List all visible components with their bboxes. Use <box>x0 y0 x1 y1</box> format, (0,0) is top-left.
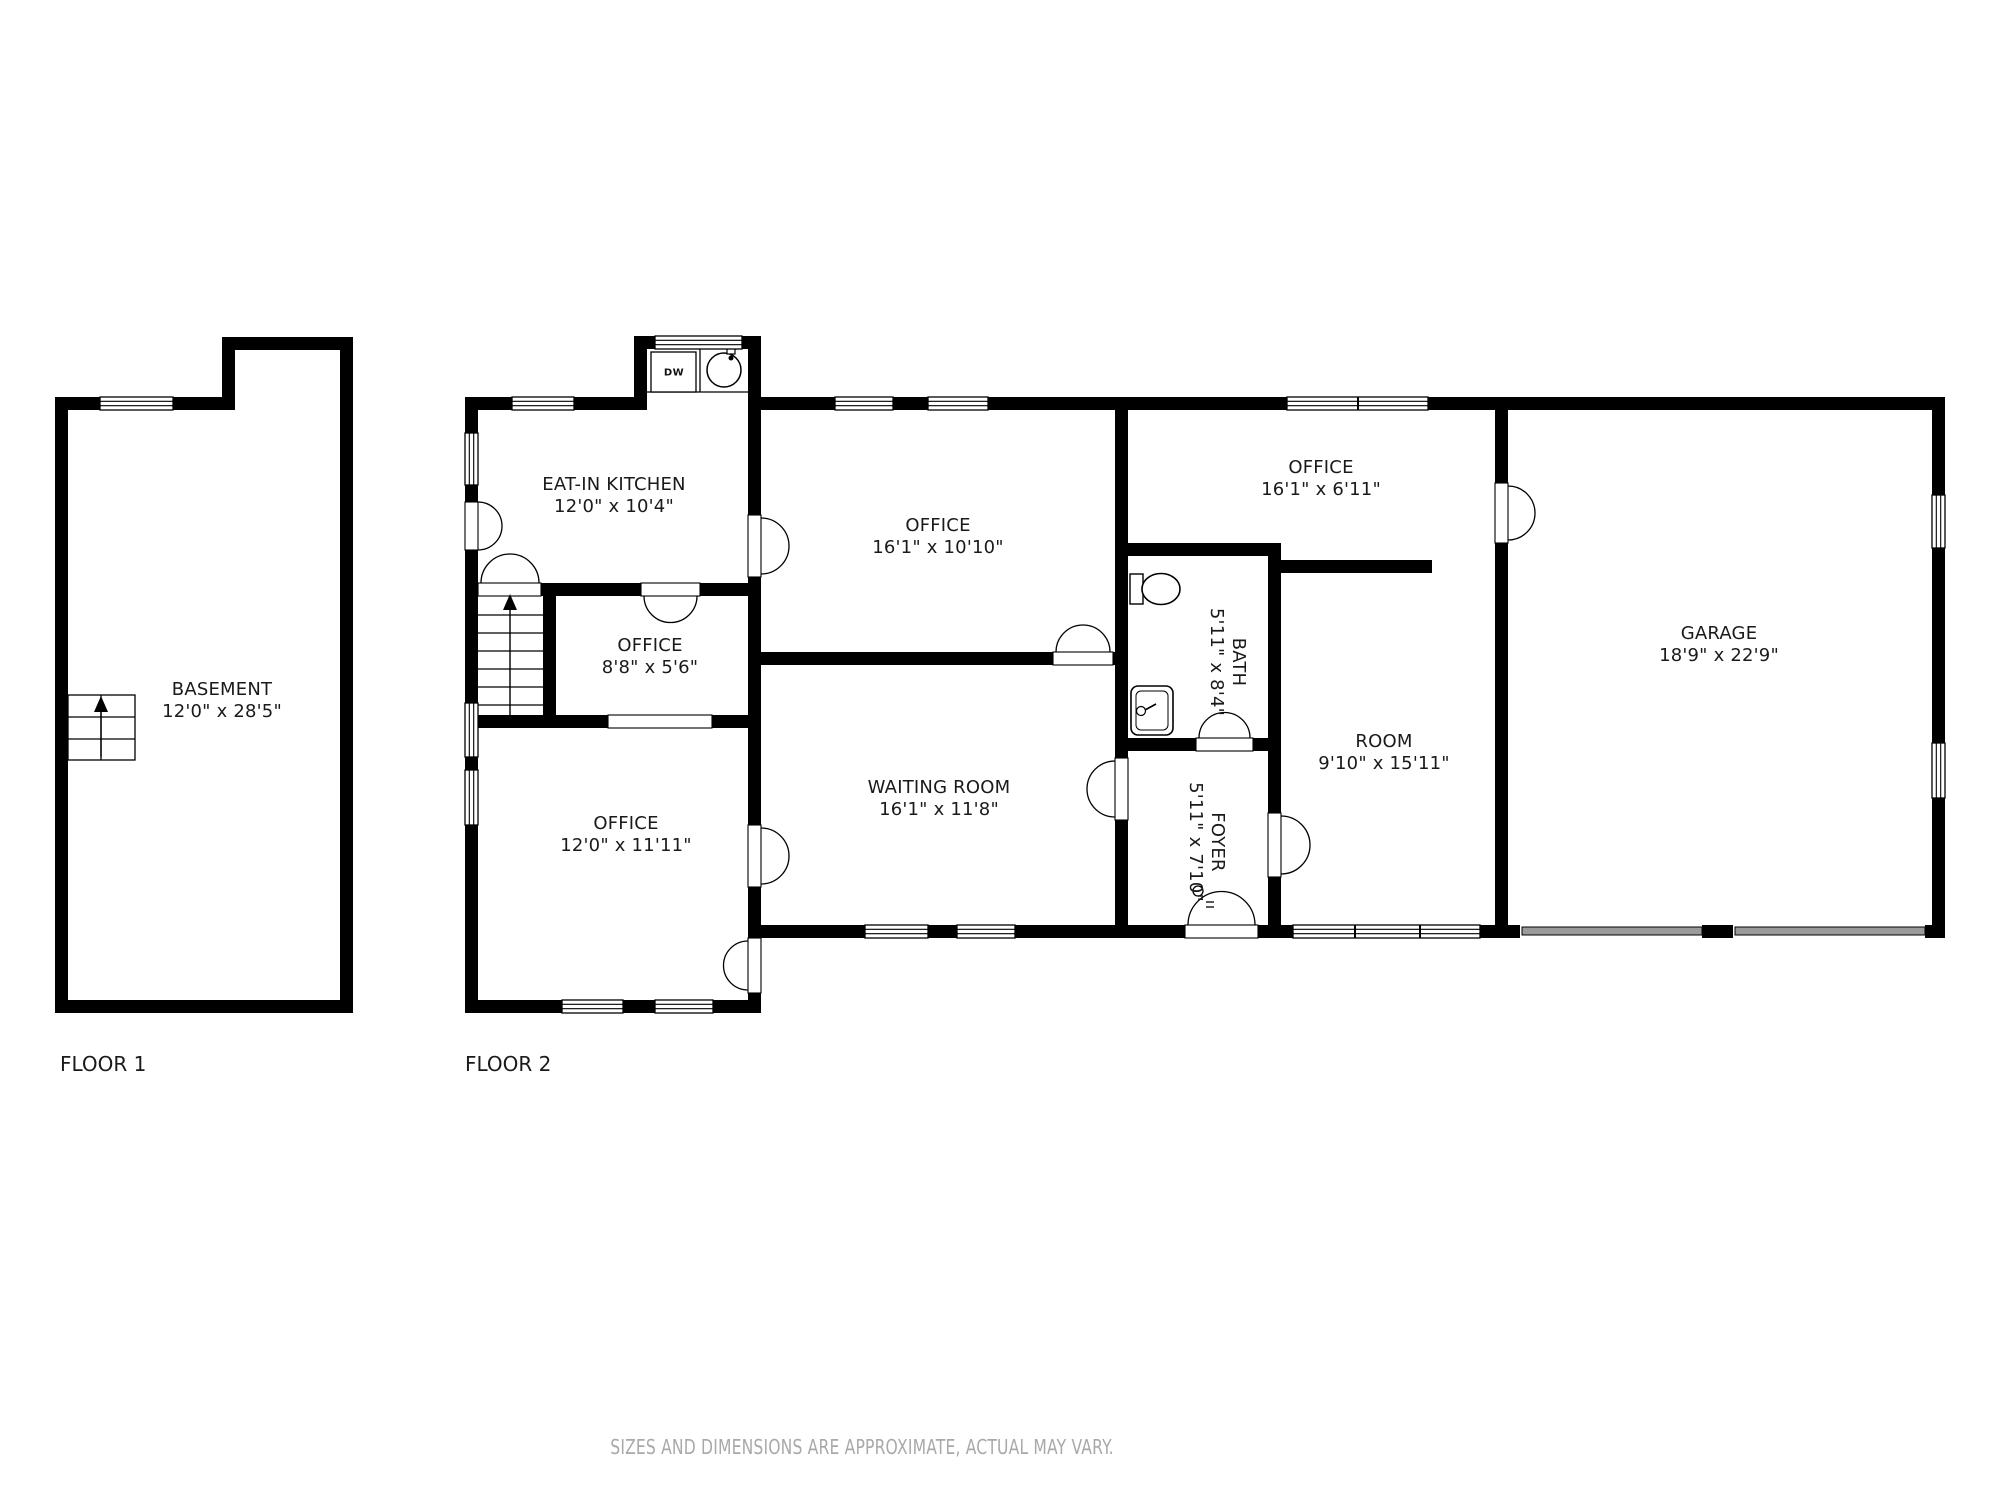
window-icon <box>512 397 574 410</box>
door-icon <box>478 554 541 596</box>
door-icon <box>748 515 789 577</box>
room-name: EAT-IN KITCHEN <box>542 474 685 496</box>
room-dims: 5'11" x 7'10" <box>1184 782 1206 902</box>
room-name: OFFICE <box>872 515 1004 537</box>
floorplan-page: BASEMENT 12'0" x 28'5" EAT-IN KITCHEN 12… <box>0 0 2000 1500</box>
window-icon <box>655 1000 713 1013</box>
window-icon <box>957 925 1015 938</box>
disclaimer-text: SIZES AND DIMENSIONS ARE APPROXIMATE, AC… <box>610 1435 1113 1459</box>
toilet-icon <box>1130 574 1180 605</box>
wall-opening <box>608 715 712 728</box>
room-dims: 12'0" x 28'5" <box>162 701 282 723</box>
room-dims: 12'0" x 11'11" <box>560 835 692 857</box>
floor2-label: FLOOR 2 <box>465 1052 551 1076</box>
door-icon <box>724 938 762 993</box>
garage-door-icon <box>1520 925 1925 938</box>
door-icon <box>1495 483 1535 543</box>
floorplan-drawing <box>0 0 2000 1500</box>
bath-sink-icon <box>1131 686 1173 735</box>
stairs-icon <box>478 594 543 715</box>
bath-label: BATH 5'11" x 8'4" <box>1205 608 1249 716</box>
room-name: ROOM <box>1318 731 1450 753</box>
room-name: WAITING ROOM <box>868 777 1011 799</box>
window-icon <box>835 397 893 410</box>
dishwasher-label: DW <box>664 368 684 379</box>
window-icon <box>655 336 742 349</box>
room-dims: 16'1" x 11'8" <box>868 799 1011 821</box>
room-dims: 9'10" x 15'11" <box>1318 753 1450 775</box>
door-icon <box>465 502 502 550</box>
foyer-label: FOYER 5'11" x 7'10" <box>1184 782 1228 902</box>
window-icon <box>465 703 478 757</box>
door-icon <box>748 825 789 887</box>
office-top-label: OFFICE 16'1" x 10'10" <box>872 515 1004 559</box>
room-dims: 12'0" x 10'4" <box>542 496 685 518</box>
window-icon <box>865 925 928 938</box>
window-icon <box>465 770 478 825</box>
window-icon <box>928 397 988 410</box>
window-icon <box>100 397 173 410</box>
room-name: BATH <box>1227 608 1249 716</box>
window-icon <box>1287 397 1428 410</box>
office-bottom-label: OFFICE 12'0" x 11'11" <box>560 813 692 857</box>
room-name: OFFICE <box>560 813 692 835</box>
room-dims: 8'8" x 5'6" <box>602 657 699 679</box>
room-label: ROOM 9'10" x 15'11" <box>1318 731 1450 775</box>
door-icon <box>1087 758 1128 820</box>
room-dims: 18'9" x 22'9" <box>1659 645 1779 667</box>
room-dims: 5'11" x 8'4" <box>1205 608 1227 716</box>
room-name: FOYER <box>1206 782 1228 902</box>
waiting-room-label: WAITING ROOM 16'1" x 11'8" <box>868 777 1011 821</box>
door-icon <box>1053 625 1113 665</box>
kitchen-label: EAT-IN KITCHEN 12'0" x 10'4" <box>542 474 685 518</box>
room-dims: 16'1" x 6'11" <box>1261 479 1381 501</box>
door-icon <box>641 583 700 623</box>
floor1-basement-plan <box>55 337 353 1013</box>
window-icon <box>562 1000 623 1013</box>
office-right-label: OFFICE 16'1" x 6'11" <box>1261 457 1381 501</box>
room-name: BASEMENT <box>162 679 282 701</box>
basement-label: BASEMENT 12'0" x 28'5" <box>162 679 282 723</box>
office-small-label: OFFICE 8'8" x 5'6" <box>602 635 699 679</box>
window-icon <box>465 433 478 485</box>
basement-stairs-icon <box>68 695 135 760</box>
window-icon <box>1932 495 1945 548</box>
garage-label: GARAGE 18'9" x 22'9" <box>1659 623 1779 667</box>
room-dims: 16'1" x 10'10" <box>872 537 1004 559</box>
window-icon <box>1932 743 1945 798</box>
basement-walls <box>55 337 353 1013</box>
room-name: OFFICE <box>602 635 699 657</box>
window-icon <box>1293 925 1480 938</box>
floor1-label: FLOOR 1 <box>60 1052 146 1076</box>
room-name: OFFICE <box>1261 457 1381 479</box>
room-name: GARAGE <box>1659 623 1779 645</box>
door-icon <box>1196 713 1253 752</box>
door-icon <box>1268 813 1310 877</box>
